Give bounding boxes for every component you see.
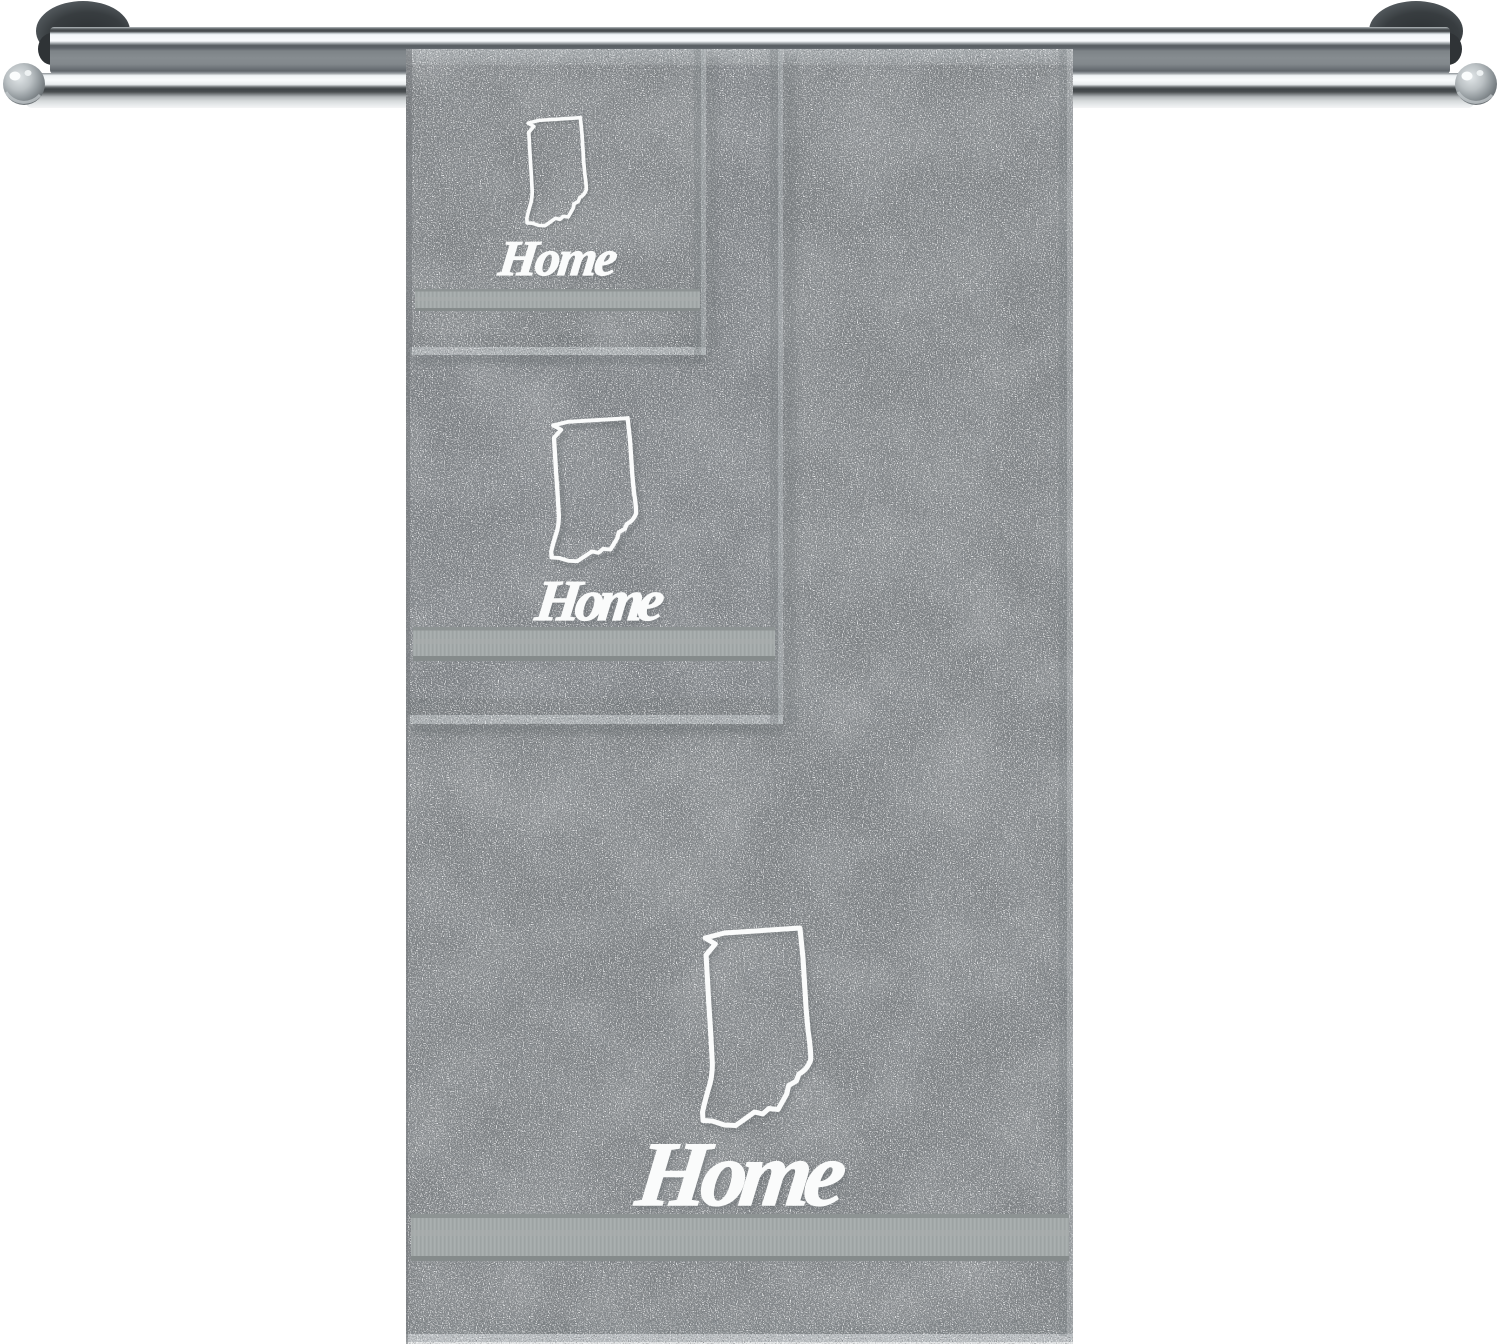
svg-text:Home: Home — [531, 568, 668, 633]
svg-text:Home: Home — [495, 230, 621, 286]
svg-text:Home: Home — [631, 1123, 852, 1225]
